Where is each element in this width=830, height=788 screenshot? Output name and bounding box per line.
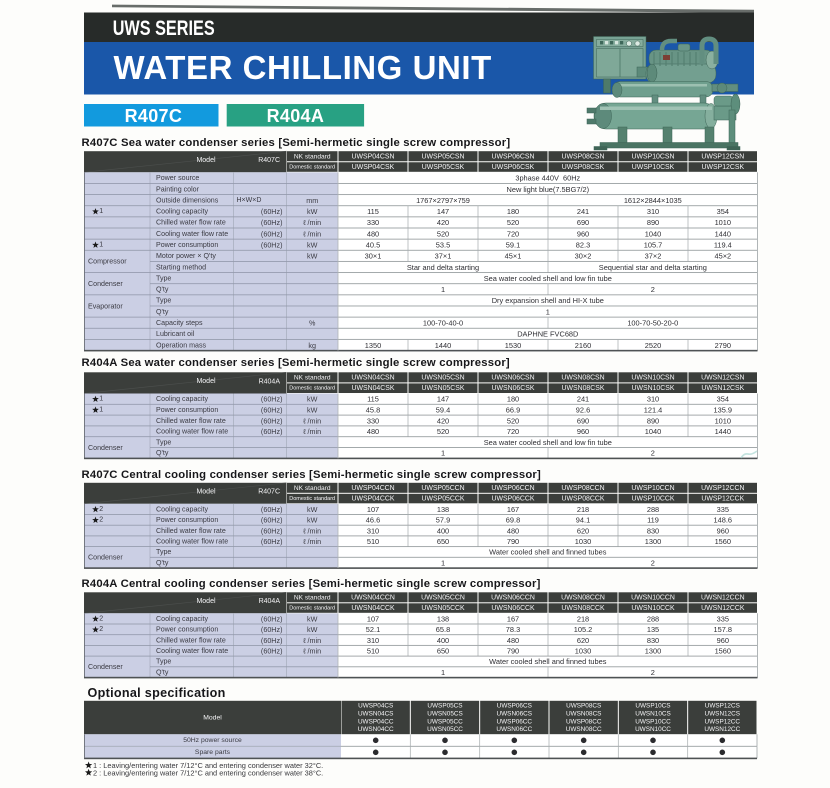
svg-text:Q'ty: Q'ty: [156, 286, 169, 294]
svg-text:NK standard: NK standard: [294, 374, 331, 381]
svg-text:400: 400: [437, 636, 449, 645]
svg-text:UWSP05CCK: UWSP05CCK: [422, 495, 465, 502]
svg-text:UWSN12CSK: UWSN12CSK: [701, 385, 744, 392]
svg-text:R407C: R407C: [258, 489, 280, 496]
svg-text:Q'ty: Q'ty: [156, 668, 169, 676]
svg-text:69.8: 69.8: [506, 516, 520, 525]
svg-text:288: 288: [647, 505, 659, 514]
svg-text:310: 310: [647, 207, 659, 216]
svg-text:Star and delta starting: Star and delta starting: [407, 263, 479, 272]
svg-text:Chilled water flow rate: Chilled water flow rate: [156, 527, 226, 535]
svg-text:ℓ /min: ℓ /min: [302, 229, 321, 238]
svg-text:1440: 1440: [715, 229, 731, 238]
svg-text:78.3: 78.3: [506, 625, 520, 634]
svg-text:107: 107: [367, 614, 379, 623]
svg-text:Cooling capacity: Cooling capacity: [156, 615, 209, 623]
svg-text:New light blue(7.5BG7/2): New light blue(7.5BG7/2): [507, 185, 590, 194]
svg-text:57.9: 57.9: [436, 516, 450, 525]
svg-text:Type: Type: [156, 658, 171, 666]
svg-text:Type: Type: [156, 274, 171, 282]
svg-text:UWSP06CS: UWSP06CS: [497, 703, 532, 710]
svg-text:620: 620: [577, 636, 589, 645]
svg-text:335: 335: [717, 614, 729, 623]
svg-text:kW: kW: [307, 252, 318, 261]
svg-text:Water cooled shell and finned: Water cooled shell and finned tubes: [489, 657, 607, 666]
svg-text:Capacity steps: Capacity steps: [156, 319, 203, 327]
svg-text:UWSN06CCN: UWSN06CCN: [491, 594, 535, 601]
svg-text:(60Hz): (60Hz): [261, 395, 283, 404]
svg-text:121.4: 121.4: [644, 406, 663, 415]
svg-text:Outside dimensions: Outside dimensions: [156, 196, 219, 204]
svg-text:UWSP04CSN: UWSP04CSN: [352, 153, 395, 160]
svg-text:UWS SERIES: UWS SERIES: [113, 17, 215, 40]
svg-text:UWSP06CC: UWSP06CC: [497, 718, 533, 725]
svg-text:UWSP05CS: UWSP05CS: [427, 703, 462, 710]
svg-text:UWSP12CCK: UWSP12CCK: [701, 495, 744, 502]
svg-text:UWSP10CSK: UWSP10CSK: [632, 164, 675, 171]
svg-text:167: 167: [507, 614, 519, 623]
svg-text:(60Hz): (60Hz): [261, 229, 283, 238]
svg-text:UWSN04CSN: UWSN04CSN: [351, 374, 394, 381]
svg-text:(60Hz): (60Hz): [261, 614, 283, 623]
svg-text:830: 830: [647, 636, 659, 645]
svg-text:52.1: 52.1: [366, 625, 380, 634]
svg-text:37×2: 37×2: [645, 252, 662, 261]
svg-text:WATER CHILLING UNIT: WATER CHILLING UNIT: [114, 49, 492, 86]
svg-text:UWSN10CCN: UWSN10CCN: [631, 594, 675, 601]
svg-text:R407C Sea water condenser seri: R407C Sea water condenser series [Semi-h…: [82, 137, 511, 149]
svg-text:Sequential star and delta star: Sequential star and delta starting: [599, 263, 707, 272]
svg-text:2520: 2520: [645, 341, 661, 350]
svg-text:UWSP10CS: UWSP10CS: [635, 703, 670, 710]
svg-text:kW: kW: [307, 395, 318, 404]
svg-text:147: 147: [437, 207, 449, 216]
svg-text:UWSP08CSN: UWSP08CSN: [562, 153, 605, 160]
svg-text:UWSP08CSK: UWSP08CSK: [562, 164, 605, 171]
svg-text:Model: Model: [196, 378, 216, 385]
svg-text:1440: 1440: [435, 341, 451, 350]
svg-text:1530: 1530: [505, 341, 521, 350]
svg-text:138: 138: [437, 614, 449, 623]
svg-text:UWSP10CCK: UWSP10CCK: [632, 495, 675, 502]
svg-text:510: 510: [367, 647, 379, 656]
svg-text:1: 1: [441, 668, 445, 677]
svg-text:R404A: R404A: [259, 378, 281, 385]
svg-text:Power consumption: Power consumption: [156, 626, 218, 634]
svg-text:105.7: 105.7: [644, 241, 663, 250]
svg-text:1040: 1040: [645, 229, 661, 238]
svg-text:Q'ty: Q'ty: [156, 308, 169, 316]
svg-text:Cooling capacity: Cooling capacity: [156, 208, 209, 216]
svg-text:kW: kW: [307, 625, 318, 634]
svg-text:(60Hz): (60Hz): [261, 625, 283, 634]
svg-text:59.1: 59.1: [506, 241, 520, 250]
svg-text:Spare parts: Spare parts: [195, 749, 231, 756]
svg-text:1030: 1030: [575, 537, 591, 546]
svg-text:UWSN12CC: UWSN12CC: [704, 726, 740, 733]
svg-text:520: 520: [507, 218, 519, 227]
svg-text:1: 1: [441, 449, 445, 458]
svg-text:(60Hz): (60Hz): [261, 647, 283, 656]
svg-text:UWSN04CCN: UWSN04CCN: [351, 594, 395, 601]
svg-text:UWSN05CSK: UWSN05CSK: [422, 385, 465, 392]
svg-text:2: 2: [651, 668, 655, 677]
svg-text:R404A: R404A: [267, 106, 325, 126]
svg-text:310: 310: [367, 526, 379, 535]
svg-text:Power consumption: Power consumption: [156, 241, 218, 249]
svg-text:3phase 440V 60Hz: 3phase 440V 60Hz: [515, 174, 580, 183]
svg-text:UWSP12CSK: UWSP12CSK: [702, 164, 745, 171]
svg-text:UWSP04CS: UWSP04CS: [358, 703, 393, 710]
svg-text:Cooling water flow rate: Cooling water flow rate: [156, 428, 228, 436]
svg-text:890: 890: [647, 218, 659, 227]
svg-text:1350: 1350: [365, 341, 381, 350]
svg-text:107: 107: [367, 505, 379, 514]
svg-text:UWSN10CS: UWSN10CS: [635, 710, 671, 717]
svg-text:UWSP12CCN: UWSP12CCN: [701, 485, 744, 492]
svg-text:53.5: 53.5: [436, 241, 450, 250]
svg-text:Condenser: Condenser: [88, 663, 123, 671]
svg-text:UWSP10CCN: UWSP10CCN: [631, 485, 674, 492]
svg-text:82.3: 82.3: [576, 241, 590, 250]
svg-text:Type: Type: [156, 438, 171, 446]
svg-text:(60Hz): (60Hz): [261, 218, 283, 227]
svg-text:2: 2: [651, 449, 655, 458]
svg-text:UWSN12CSN: UWSN12CSN: [701, 374, 744, 381]
svg-text:Compressor: Compressor: [88, 258, 127, 266]
svg-text:Domestic standard: Domestic standard: [289, 605, 335, 611]
svg-text:138: 138: [437, 505, 449, 514]
svg-text:1010: 1010: [715, 416, 731, 425]
svg-text:50Hz power source: 50Hz power source: [183, 737, 242, 744]
svg-text:720: 720: [507, 427, 519, 436]
svg-text:1: 1: [441, 285, 445, 294]
svg-text:UWSN10CCK: UWSN10CCK: [631, 605, 675, 612]
svg-text:1040: 1040: [645, 427, 661, 436]
svg-text:1: 1: [99, 242, 103, 249]
svg-text:NK standard: NK standard: [294, 153, 331, 160]
svg-text:135: 135: [647, 625, 659, 634]
svg-text:400: 400: [437, 526, 449, 535]
svg-text:Chilled water flow rate: Chilled water flow rate: [156, 417, 226, 425]
svg-text:UWSN12CCN: UWSN12CCN: [701, 594, 745, 601]
svg-text:Cooling water flow rate: Cooling water flow rate: [156, 230, 228, 238]
svg-text:Model: Model: [196, 489, 216, 496]
svg-text:2 : Leaving/entering water 7/1: 2 : Leaving/entering water 7/12°C and en…: [93, 768, 323, 777]
svg-text:1440: 1440: [715, 427, 731, 436]
svg-text:kg: kg: [308, 341, 316, 350]
svg-text:Cooling water flow rate: Cooling water flow rate: [156, 647, 228, 655]
svg-text:Domestic standard: Domestic standard: [289, 496, 335, 502]
svg-text:180: 180: [507, 395, 519, 404]
svg-text:520: 520: [437, 229, 449, 238]
svg-text:Starting method: Starting method: [156, 263, 206, 271]
svg-text:59.4: 59.4: [436, 406, 450, 415]
svg-text:ℓ /min: ℓ /min: [302, 647, 321, 656]
svg-text:(60Hz): (60Hz): [261, 636, 283, 645]
svg-text:1767×2797×759: 1767×2797×759: [416, 196, 470, 205]
svg-text:Cooling water flow rate: Cooling water flow rate: [156, 538, 228, 546]
svg-text:UWSN04CC: UWSN04CC: [358, 726, 394, 733]
svg-text:R404A Central cooling condense: R404A Central cooling condenser series […: [82, 578, 541, 590]
svg-text:148.6: 148.6: [714, 516, 733, 525]
svg-text:UWSN05CCN: UWSN05CCN: [421, 594, 465, 601]
svg-text:Chilled water flow rate: Chilled water flow rate: [156, 636, 226, 644]
svg-text:kW: kW: [307, 207, 318, 216]
svg-text:1: 1: [546, 307, 550, 316]
svg-text:Power consumption: Power consumption: [156, 406, 218, 414]
svg-text:218: 218: [577, 614, 589, 623]
svg-text:520: 520: [437, 427, 449, 436]
svg-text:45×1: 45×1: [505, 252, 522, 261]
svg-text:2: 2: [99, 615, 103, 622]
svg-text:(60Hz): (60Hz): [261, 516, 283, 525]
svg-text:Power consumption: Power consumption: [156, 516, 218, 524]
svg-text:Type: Type: [156, 297, 171, 305]
svg-text:30×1: 30×1: [365, 252, 382, 261]
svg-text:650: 650: [437, 647, 449, 656]
svg-text:UWSP08CS: UWSP08CS: [566, 703, 601, 710]
svg-text:1: 1: [99, 407, 103, 414]
svg-text:UWSP08CCK: UWSP08CCK: [562, 495, 605, 502]
svg-text:1300: 1300: [645, 647, 661, 656]
svg-text:UWSN05CS: UWSN05CS: [427, 710, 463, 717]
svg-text:ℓ /min: ℓ /min: [302, 416, 321, 425]
svg-text:690: 690: [577, 416, 589, 425]
svg-text:R407C: R407C: [125, 106, 183, 126]
svg-text:620: 620: [577, 526, 589, 535]
svg-text:DAPHNE FVC68D: DAPHNE FVC68D: [517, 330, 578, 339]
svg-text:H×W×D: H×W×D: [237, 197, 262, 204]
svg-text:720: 720: [507, 229, 519, 238]
svg-text:167: 167: [507, 505, 519, 514]
svg-text:2: 2: [651, 558, 655, 567]
svg-text:UWSN06CC: UWSN06CC: [496, 726, 532, 733]
svg-text:Q'ty: Q'ty: [156, 559, 169, 567]
svg-text:Sea water cooled shell and low: Sea water cooled shell and low fin tube: [484, 274, 612, 283]
svg-text:UWSN10CSK: UWSN10CSK: [632, 385, 675, 392]
svg-text:ℓ /min: ℓ /min: [302, 537, 321, 546]
svg-text:R404A Sea water condenser seri: R404A Sea water condenser series [Semi-h…: [82, 357, 510, 369]
svg-text:65.8: 65.8: [436, 625, 450, 634]
svg-text:2: 2: [99, 517, 103, 524]
svg-text:650: 650: [437, 537, 449, 546]
svg-text:335: 335: [717, 505, 729, 514]
svg-text:UWSN06CS: UWSN06CS: [497, 710, 533, 717]
svg-text:(60Hz): (60Hz): [261, 537, 283, 546]
svg-text:kW: kW: [307, 614, 318, 623]
svg-text:UWSN05CCK: UWSN05CCK: [421, 605, 465, 612]
svg-text:UWSP05CC: UWSP05CC: [427, 718, 463, 725]
svg-text:UWSN08CSN: UWSN08CSN: [561, 374, 604, 381]
svg-text:310: 310: [647, 395, 659, 404]
svg-text:Lubricant oil: Lubricant oil: [156, 330, 195, 338]
svg-text:37×1: 37×1: [435, 252, 452, 261]
svg-text:(60Hz): (60Hz): [261, 427, 283, 436]
svg-text:Q'ty: Q'ty: [156, 449, 169, 457]
svg-text:1612×2844×1035: 1612×2844×1035: [624, 196, 682, 205]
svg-text:kW: kW: [307, 516, 318, 525]
svg-text:UWSP04CSK: UWSP04CSK: [352, 164, 395, 171]
svg-text:115: 115: [367, 395, 379, 404]
svg-text:157.8: 157.8: [714, 625, 733, 634]
svg-text:480: 480: [507, 526, 519, 535]
svg-text:(60Hz): (60Hz): [261, 505, 283, 514]
svg-text:Model: Model: [196, 598, 216, 605]
svg-text:288: 288: [647, 614, 659, 623]
svg-text:(60Hz): (60Hz): [261, 416, 283, 425]
svg-text:UWSP08CC: UWSP08CC: [566, 718, 602, 725]
svg-text:790: 790: [507, 647, 519, 656]
svg-text:UWSP04CCN: UWSP04CCN: [351, 485, 394, 492]
svg-text:%: %: [309, 319, 316, 328]
svg-text:UWSN06CSK: UWSN06CSK: [492, 385, 535, 392]
svg-text:40.5: 40.5: [366, 241, 380, 250]
svg-text:2: 2: [99, 626, 103, 633]
svg-text:420: 420: [437, 218, 449, 227]
svg-text:241: 241: [577, 395, 589, 404]
svg-text:ℓ /min: ℓ /min: [302, 526, 321, 535]
svg-text:218: 218: [577, 505, 589, 514]
svg-text:420: 420: [437, 416, 449, 425]
svg-text:NK standard: NK standard: [294, 594, 331, 601]
svg-text:Cooling capacity: Cooling capacity: [156, 395, 209, 403]
svg-text:354: 354: [717, 395, 729, 404]
svg-text:147: 147: [437, 395, 449, 404]
svg-text:790: 790: [507, 537, 519, 546]
svg-text:kW: kW: [307, 505, 318, 514]
svg-text:Domestic standard: Domestic standard: [289, 164, 335, 170]
svg-text:135.9: 135.9: [714, 406, 733, 415]
svg-text:UWSP06CCN: UWSP06CCN: [491, 485, 534, 492]
svg-text:30×2: 30×2: [575, 252, 592, 261]
svg-text:UWSN06CCK: UWSN06CCK: [491, 605, 535, 612]
svg-text:2790: 2790: [715, 341, 731, 350]
svg-text:Motor power × Q'ty: Motor power × Q'ty: [156, 252, 216, 260]
svg-text:510: 510: [367, 537, 379, 546]
svg-text:1030: 1030: [575, 647, 591, 656]
svg-text:Type: Type: [156, 548, 171, 556]
svg-text:NK standard: NK standard: [294, 485, 331, 492]
svg-text:UWSN10CSN: UWSN10CSN: [631, 374, 674, 381]
svg-text:UWSN12CCK: UWSN12CCK: [701, 605, 745, 612]
svg-text:2160: 2160: [575, 341, 591, 350]
svg-text:330: 330: [367, 416, 379, 425]
svg-text:mm: mm: [306, 196, 318, 205]
svg-text:690: 690: [577, 218, 589, 227]
svg-text:UWSP06CSK: UWSP06CSK: [492, 164, 535, 171]
svg-text:Condenser: Condenser: [88, 280, 123, 288]
svg-text:100-70-40-0: 100-70-40-0: [423, 319, 463, 328]
svg-text:UWSN08CSK: UWSN08CSK: [562, 385, 605, 392]
svg-text:1560: 1560: [715, 537, 731, 546]
svg-text:UWSN12CS: UWSN12CS: [705, 710, 741, 717]
svg-text:119.4: 119.4: [714, 241, 732, 250]
svg-text:UWSP12CSN: UWSP12CSN: [701, 153, 744, 160]
svg-text:Chilled water flow rate: Chilled water flow rate: [156, 219, 226, 227]
svg-text:UWSP05CSN: UWSP05CSN: [422, 153, 465, 160]
svg-text:UWSP06CCK: UWSP06CCK: [492, 495, 535, 502]
svg-text:Model: Model: [196, 157, 216, 164]
svg-text:2: 2: [651, 285, 655, 294]
svg-text:R407C: R407C: [258, 157, 280, 164]
svg-text:480: 480: [507, 636, 519, 645]
svg-text:180: 180: [507, 207, 519, 216]
svg-text:(60Hz): (60Hz): [261, 526, 283, 535]
svg-text:UWSP05CCN: UWSP05CCN: [421, 485, 464, 492]
svg-text:Sea water cooled shell and low: Sea water cooled shell and low fin tube: [484, 438, 612, 447]
svg-text:Condenser: Condenser: [88, 444, 123, 452]
svg-text:UWSN06CSN: UWSN06CSN: [491, 374, 534, 381]
svg-text:1: 1: [99, 396, 103, 403]
svg-text:105.2: 105.2: [574, 625, 593, 634]
svg-text:1010: 1010: [715, 218, 731, 227]
svg-text:R404A: R404A: [259, 598, 281, 605]
svg-text:94.1: 94.1: [576, 516, 590, 525]
svg-text:UWSN05CSN: UWSN05CSN: [421, 374, 464, 381]
svg-text:119: 119: [647, 516, 659, 525]
svg-text:ℓ /min: ℓ /min: [302, 427, 321, 436]
svg-text:45×2: 45×2: [714, 252, 731, 261]
svg-text:1: 1: [441, 558, 445, 567]
svg-text:(60Hz): (60Hz): [261, 406, 283, 415]
svg-text:Model: Model: [203, 714, 222, 721]
svg-text:kW: kW: [307, 241, 318, 250]
svg-text:890: 890: [647, 416, 659, 425]
svg-text:960: 960: [577, 427, 589, 436]
svg-text:Power source: Power source: [156, 174, 199, 182]
svg-text:960: 960: [717, 636, 729, 645]
svg-text:UWSP10CC: UWSP10CC: [635, 718, 671, 725]
svg-text:UWSP10CSN: UWSP10CSN: [632, 153, 675, 160]
svg-text:UWSN04CCK: UWSN04CCK: [351, 605, 395, 612]
svg-text:66.9: 66.9: [506, 406, 520, 415]
svg-text:UWSN04CSK: UWSN04CSK: [352, 385, 395, 392]
svg-text:UWSN04CS: UWSN04CS: [358, 710, 394, 717]
svg-text:UWSP05CSK: UWSP05CSK: [422, 164, 465, 171]
svg-text:354: 354: [717, 207, 729, 216]
svg-text:330: 330: [367, 218, 379, 227]
svg-text:UWSN05CC: UWSN05CC: [427, 726, 463, 733]
svg-text:1300: 1300: [645, 537, 661, 546]
svg-text:Operation mass: Operation mass: [156, 341, 207, 349]
svg-text:UWSP08CCN: UWSP08CCN: [561, 485, 604, 492]
svg-text:Condenser: Condenser: [88, 554, 123, 562]
svg-text:kW: kW: [307, 406, 318, 415]
svg-text:UWSP04CCK: UWSP04CCK: [352, 495, 395, 502]
svg-text:480: 480: [367, 229, 379, 238]
svg-text:480: 480: [367, 427, 379, 436]
svg-text:1560: 1560: [715, 647, 731, 656]
svg-text:UWSN10CC: UWSN10CC: [635, 726, 671, 733]
svg-text:ℓ /min: ℓ /min: [302, 218, 321, 227]
svg-text:Cooling capacity: Cooling capacity: [156, 506, 209, 514]
svg-text:R407C Central cooling condense: R407C Central cooling condenser series […: [82, 469, 542, 481]
svg-text:UWSN08CS: UWSN08CS: [566, 710, 602, 717]
svg-text:UWSN08CCK: UWSN08CCK: [561, 605, 605, 612]
svg-text:UWSN08CC: UWSN08CC: [566, 726, 602, 733]
svg-text:Water cooled shell and finned: Water cooled shell and finned tubes: [489, 548, 607, 557]
svg-text:830: 830: [647, 526, 659, 535]
svg-text:UWSN08CCN: UWSN08CCN: [561, 594, 605, 601]
svg-text:520: 520: [507, 416, 519, 425]
svg-text:960: 960: [717, 526, 729, 535]
svg-text:Domestic standard: Domestic standard: [289, 386, 335, 392]
svg-text:241: 241: [577, 207, 589, 216]
svg-text:(60Hz): (60Hz): [261, 207, 283, 216]
svg-text:45.8: 45.8: [366, 406, 380, 415]
svg-text:Painting color: Painting color: [156, 185, 200, 193]
